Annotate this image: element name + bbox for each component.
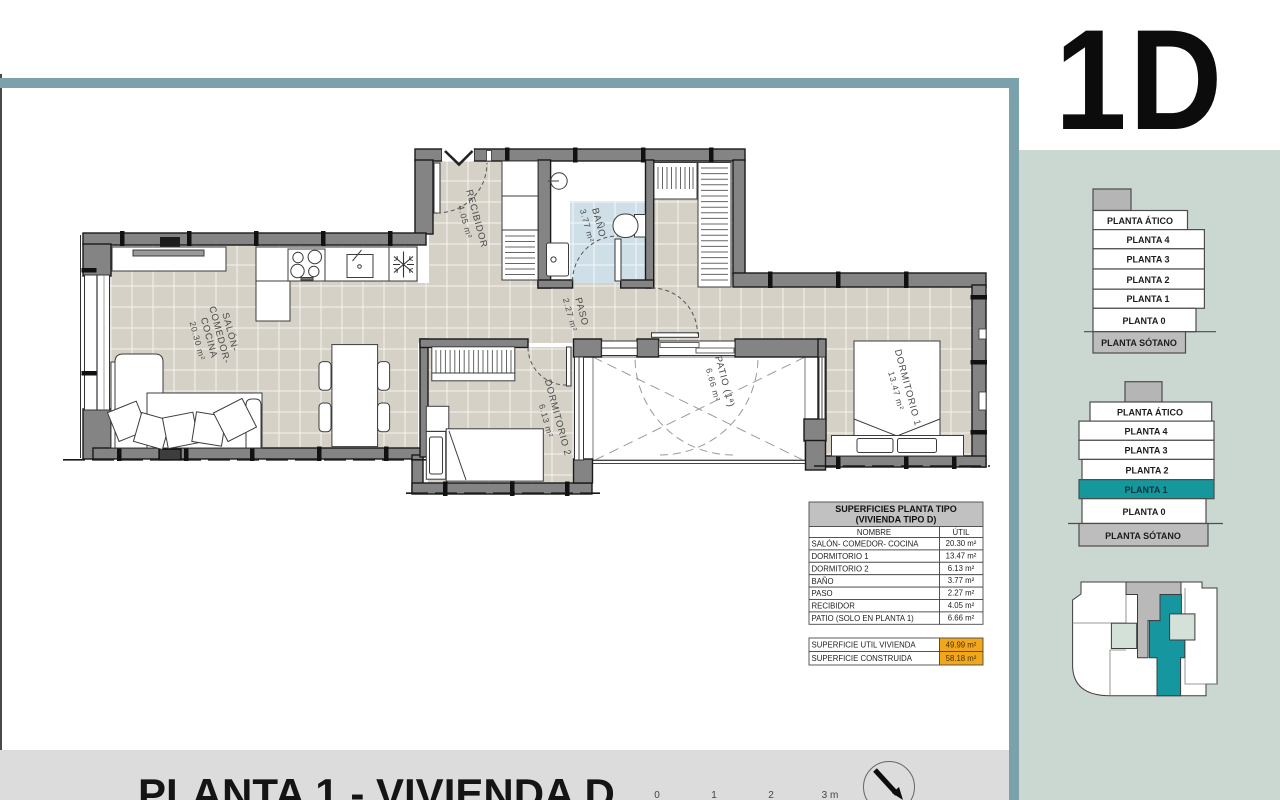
svg-text:PLANTA 2: PLANTA 2 xyxy=(1125,466,1168,476)
svg-text:DORMITORIO 1: DORMITORIO 1 xyxy=(812,552,869,561)
svg-text:3.77 m²: 3.77 m² xyxy=(948,576,975,585)
svg-text:PLANTA 4: PLANTA 4 xyxy=(1124,427,1167,437)
svg-text:SUPERFICIE UTIL VIVIENDA: SUPERFICIE UTIL VIVIENDA xyxy=(812,641,917,650)
svg-text:1: 1 xyxy=(711,790,717,800)
svg-text:RECIBIDOR: RECIBIDOR xyxy=(812,602,856,611)
svg-text:0: 0 xyxy=(654,790,660,800)
svg-text:PLANTA 0: PLANTA 0 xyxy=(1122,316,1165,326)
svg-text:NOMBRE: NOMBRE xyxy=(857,528,891,537)
svg-text:SUPERFICIE CONSTRUIDA: SUPERFICIE CONSTRUIDA xyxy=(812,654,913,663)
svg-text:PLANTA SÓTANO: PLANTA SÓTANO xyxy=(1101,337,1177,348)
svg-text:ÚTIL: ÚTIL xyxy=(953,528,971,537)
svg-text:PLANTA 1: PLANTA 1 xyxy=(1124,485,1167,495)
svg-text:PLANTA 1 - VIVIENDA D: PLANTA 1 - VIVIENDA D xyxy=(138,770,615,800)
svg-text:PLANTA 0: PLANTA 0 xyxy=(1122,507,1165,517)
svg-text:PLANTA 4: PLANTA 4 xyxy=(1126,235,1169,245)
svg-text:2.27 m²: 2.27 m² xyxy=(948,589,975,598)
svg-text:PASO: PASO xyxy=(812,589,833,598)
svg-text:SALÓN- COMEDOR- COCINA: SALÓN- COMEDOR- COCINA xyxy=(812,540,920,549)
svg-text:BAÑO: BAÑO xyxy=(812,577,834,586)
svg-text:PLANTA 2: PLANTA 2 xyxy=(1126,275,1169,285)
svg-text:PLANTA ÁTICO: PLANTA ÁTICO xyxy=(1117,408,1183,418)
svg-text:PATIO (SOLO EN PLANTA 1): PATIO (SOLO EN PLANTA 1) xyxy=(812,614,915,623)
svg-text:PLANTA SÓTANO: PLANTA SÓTANO xyxy=(1105,530,1181,541)
svg-text:6.13 m²: 6.13 m² xyxy=(948,564,975,573)
svg-text:SUPERFICIES PLANTA TIPO: SUPERFICIES PLANTA TIPO xyxy=(835,504,957,514)
svg-text:1D: 1D xyxy=(1055,0,1225,159)
svg-text:13.47 m²: 13.47 m² xyxy=(946,551,977,560)
svg-text:PLANTA 3: PLANTA 3 xyxy=(1124,446,1167,456)
svg-text:PLANTA 1: PLANTA 1 xyxy=(1126,294,1169,304)
svg-text:(VIVIENDA TIPO D): (VIVIENDA TIPO D) xyxy=(856,515,937,525)
svg-text:3 m: 3 m xyxy=(822,790,839,800)
svg-text:2: 2 xyxy=(768,790,774,800)
svg-text:49.99 m²: 49.99 m² xyxy=(946,641,977,650)
svg-text:4.05 m²: 4.05 m² xyxy=(948,601,975,610)
svg-text:PLANTA ÁTICO: PLANTA ÁTICO xyxy=(1107,216,1173,226)
svg-text:6.66 m²: 6.66 m² xyxy=(948,613,975,622)
svg-text:DORMITORIO 2: DORMITORIO 2 xyxy=(812,564,869,573)
svg-text:58.18 m²: 58.18 m² xyxy=(946,654,977,663)
svg-text:PLANTA 3: PLANTA 3 xyxy=(1126,255,1169,265)
svg-text:20.30 m²: 20.30 m² xyxy=(946,539,977,548)
